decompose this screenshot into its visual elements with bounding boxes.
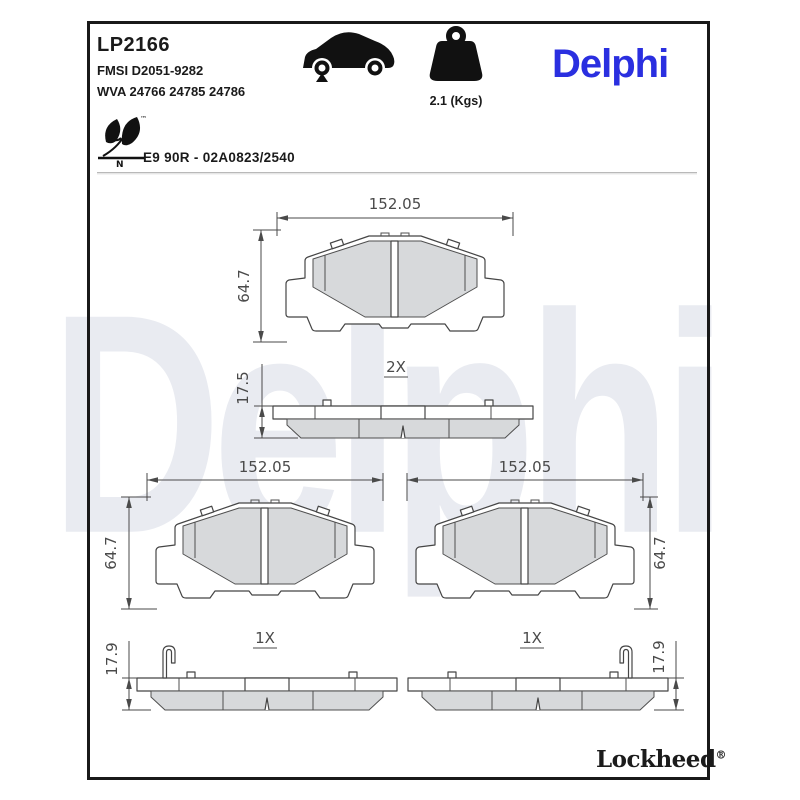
pad-profile-left (137, 672, 397, 710)
wear-indicator-left (163, 646, 175, 678)
pad-front-left (156, 500, 374, 598)
drawing-right-front-view: 152.05 64.7 (392, 455, 697, 615)
weight-icon (426, 24, 486, 88)
fmsi-code: FMSI D2051-9282 (97, 63, 203, 78)
pad-profile-top (273, 400, 533, 438)
delphi-logo: Delphi (552, 42, 668, 87)
dim-width-left: 152.05 (239, 458, 292, 476)
dim-width-right: 152.05 (499, 458, 552, 476)
height-dimension-left: 64.7 (103, 497, 157, 609)
drawing-left-front-view: 152.05 64.7 (103, 455, 408, 615)
eco-leaf-icon: ™ N (97, 112, 147, 168)
part-number: LP2166 (97, 34, 170, 57)
wear-indicator-right (620, 646, 632, 678)
drawing-right-profile-view: 1X 17.9 (392, 625, 697, 730)
drawing-left-profile-view: 1X 17.9 (103, 625, 408, 730)
dim-width-top: 152.05 (369, 195, 422, 213)
weight-label: 2.1 (Kgs) (413, 94, 499, 108)
pad-front-top (286, 233, 504, 331)
drawing-top-profile-view: 2X 17.5 (228, 350, 563, 446)
dim-thickness-left: 17.9 (103, 642, 121, 675)
tm-mark: ™ (140, 115, 147, 123)
lockheed-logo: Lockheed® (596, 746, 726, 773)
lockheed-wordmark: Lockheed (596, 746, 716, 773)
car-icon (300, 26, 396, 84)
eco-n-label: N (116, 160, 124, 168)
width-dimension-top: 152.05 (277, 195, 513, 236)
width-dimension-left: 152.05 (147, 458, 383, 501)
qty-label-top: 2X (386, 358, 406, 376)
dim-thickness-right: 17.9 (650, 640, 668, 673)
thickness-dimension-left: 17.9 (103, 641, 151, 710)
qty-label-left: 1X (255, 629, 275, 647)
registered-mark: ® (716, 748, 727, 761)
height-dimension-right: 64.7 (634, 497, 669, 609)
dim-height-top: 64.7 (235, 269, 253, 302)
height-dimension-top: 64.7 (235, 230, 287, 342)
qty-label-right: 1X (522, 629, 542, 647)
dim-thickness-top: 17.5 (234, 371, 252, 404)
catalog-page: Delphi LP2166 FMSI D2051-9282 WVA 24766 … (0, 0, 800, 800)
homologation-text: E9 90R - 02A0823/2540 (143, 150, 295, 165)
drawing-top-front-view: 152.05 64.7 (225, 190, 560, 352)
header-divider (97, 172, 697, 175)
wva-code: WVA 24766 24785 24786 (97, 84, 245, 99)
dim-height-right: 64.7 (651, 536, 669, 569)
width-dimension-right: 152.05 (407, 458, 643, 501)
thickness-dimension-right: 17.9 (650, 640, 684, 710)
dim-height-left: 64.7 (103, 536, 120, 569)
pad-front-right (416, 500, 634, 598)
leaf-right (122, 117, 140, 145)
